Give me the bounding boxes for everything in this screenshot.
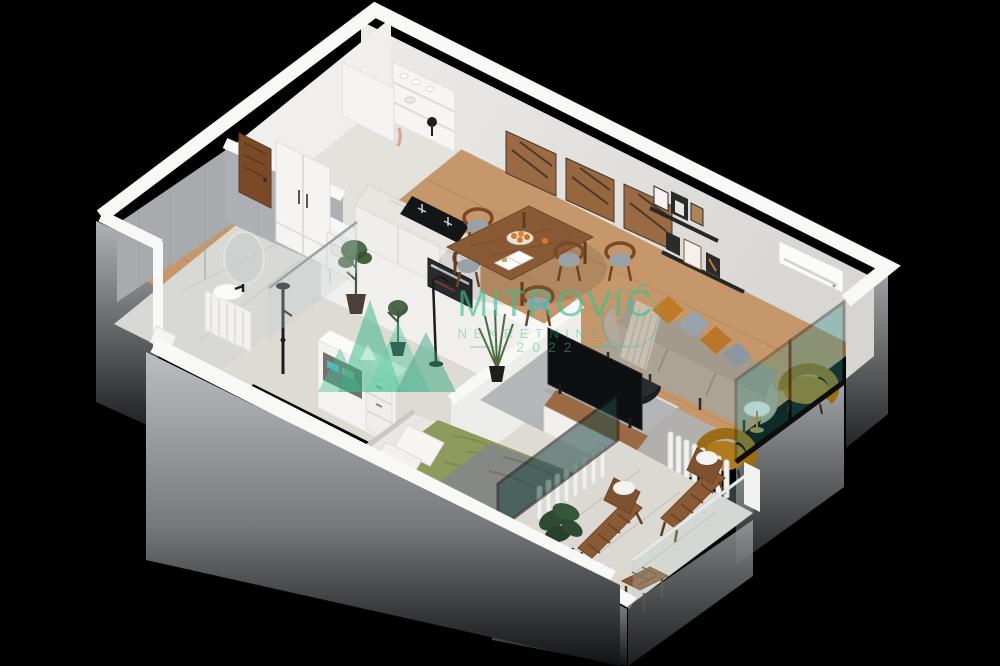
door-knob [263, 178, 267, 182]
loose-orange [542, 238, 548, 244]
floorplan-render: MITROVIĆ NEKRETNINE 2022 [0, 0, 1000, 666]
round-mirror [224, 232, 264, 284]
watermark-year: 2022 [516, 339, 579, 355]
hanging-pan-icon [427, 117, 437, 127]
parapet-post [744, 462, 760, 512]
headrest-pillow [613, 481, 635, 495]
isometric-apartment-svg: MITROVIĆ NEKRETNINE 2022 [0, 0, 1000, 666]
watermark-brand: MITROVIĆ [458, 283, 655, 324]
